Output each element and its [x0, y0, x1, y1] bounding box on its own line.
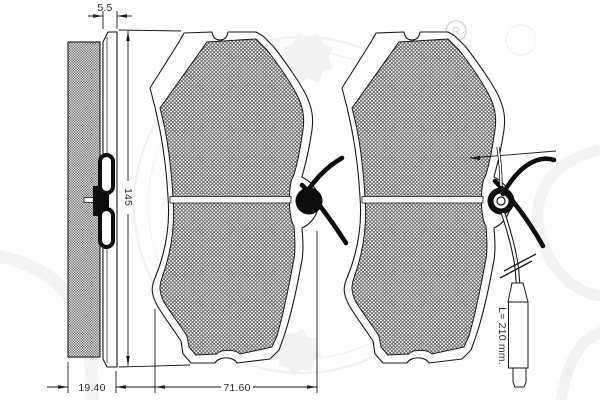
arrowhead — [117, 14, 127, 18]
pad-height-label: 145 — [122, 188, 134, 206]
arrowhead — [307, 385, 317, 389]
total-thickness-label: 19.40 — [78, 382, 105, 394]
wear-indicator-connector — [508, 283, 528, 387]
connector-body — [509, 302, 529, 368]
dimension-plate-thickness: 5.5 — [88, 2, 132, 29]
pad-front-view-inner: L= 210 mm. — [342, 32, 556, 387]
inner-pad-groove — [362, 197, 483, 204]
connector-tip — [513, 368, 526, 387]
plate-thickness-label: 5.5 — [97, 2, 112, 14]
arrowhead — [58, 385, 68, 389]
brake-pad-technical-drawing: R 5.5 19.40 71.60 — [0, 0, 600, 400]
drawing-canvas: R 5.5 19.40 71.60 — [0, 0, 600, 400]
clip-hook-lower — [100, 209, 113, 247]
indicator-lead-length-label: L= 210 mm. — [496, 307, 508, 365]
wear-indicator-wire — [498, 147, 536, 283]
connector-neck — [508, 283, 528, 302]
arrowhead — [93, 14, 103, 18]
arrowhead — [116, 385, 126, 389]
clip-hook-upper — [100, 155, 113, 193]
pad-side-view — [68, 32, 117, 367]
arrowhead — [126, 31, 130, 41]
outer-pad-groove — [170, 197, 291, 204]
watermark-swoosh-right — [538, 150, 600, 296]
pad-width-label: 71.60 — [223, 382, 250, 394]
arrowhead — [155, 385, 165, 389]
watermark-small-ring — [506, 25, 536, 55]
watermark-swoosh-corner — [560, 330, 600, 400]
arrowhead — [126, 356, 130, 366]
